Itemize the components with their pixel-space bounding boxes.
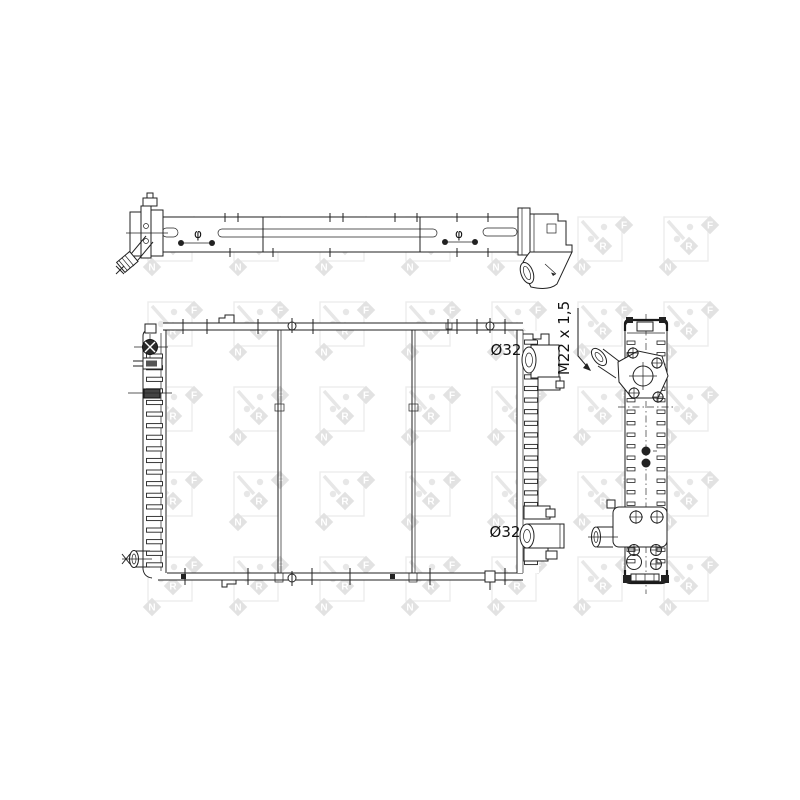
svg-text:R: R <box>427 582 435 593</box>
nrf-watermark-tile: NRF <box>659 556 719 616</box>
svg-text:R: R <box>341 582 349 593</box>
bolt-head <box>143 198 157 206</box>
pin-clamp <box>288 318 296 333</box>
nrf-watermark-tile: NRF <box>315 471 375 531</box>
svg-text:N: N <box>406 348 413 359</box>
svg-text:N: N <box>492 433 499 444</box>
svg-text:F: F <box>277 306 283 317</box>
phi-symbol: φ <box>194 227 202 241</box>
label-thread-spec: M22 x 1,5 <box>555 301 573 375</box>
top-view-bar <box>163 217 520 252</box>
svg-text:F: F <box>191 561 197 572</box>
svg-text:N: N <box>234 348 241 359</box>
nrf-watermark-tile: NRF <box>573 556 633 616</box>
pin-clamp <box>486 318 494 333</box>
svg-text:R: R <box>341 497 349 508</box>
nrf-watermark-tile: NRF <box>315 556 375 616</box>
svg-text:N: N <box>320 433 327 444</box>
top-left-bracket <box>116 193 168 274</box>
svg-text:F: F <box>191 476 197 487</box>
svg-text:R: R <box>599 582 607 593</box>
nrf-watermark-tile: NRF <box>229 386 289 446</box>
svg-text:R: R <box>513 582 521 593</box>
leader-arrowhead <box>583 363 591 371</box>
svg-text:N: N <box>320 263 327 274</box>
svg-text:F: F <box>707 306 713 317</box>
svg-text:R: R <box>427 497 435 508</box>
svg-text:F: F <box>621 221 627 232</box>
svg-text:R: R <box>255 412 263 423</box>
svg-text:N: N <box>578 603 585 614</box>
svg-text:R: R <box>169 582 177 593</box>
nrf-watermark-tile: NRF <box>573 386 633 446</box>
svg-text:R: R <box>685 582 693 593</box>
leader-line <box>578 308 590 370</box>
svg-text:N: N <box>492 263 499 274</box>
svg-text:R: R <box>599 497 607 508</box>
svg-text:F: F <box>363 306 369 317</box>
svg-text:N: N <box>578 518 585 529</box>
svg-text:R: R <box>169 497 177 508</box>
pin-clamp <box>485 571 495 590</box>
core-dividers <box>275 330 418 573</box>
svg-text:F: F <box>707 391 713 402</box>
nrf-watermark-tile: NRF <box>401 301 461 361</box>
svg-text:F: F <box>707 561 713 572</box>
nrf-watermark-tile: NRF <box>229 471 289 531</box>
nrf-watermark-tile: NRF <box>315 386 375 446</box>
svg-text:N: N <box>148 263 155 274</box>
svg-text:F: F <box>449 476 455 487</box>
top-right-bracket <box>518 208 572 288</box>
svg-text:R: R <box>341 412 349 423</box>
svg-text:F: F <box>707 476 713 487</box>
svg-text:N: N <box>234 433 241 444</box>
svg-text:N: N <box>406 518 413 529</box>
svg-text:R: R <box>255 582 263 593</box>
svg-text:N: N <box>320 603 327 614</box>
svg-text:F: F <box>363 391 369 402</box>
svg-text:F: F <box>363 561 369 572</box>
technical-drawing-canvas: NRFNRFNRFNRFNRFNRFNRFNRFNRFNRFNRFNRFNRFN… <box>0 0 800 800</box>
label-lower-port-diameter: Ø32 <box>490 523 521 541</box>
svg-text:N: N <box>234 263 241 274</box>
svg-text:N: N <box>578 348 585 359</box>
side-fitting <box>133 358 162 369</box>
svg-text:R: R <box>685 327 693 338</box>
svg-text:F: F <box>363 476 369 487</box>
svg-text:R: R <box>599 412 607 423</box>
svg-text:N: N <box>406 603 413 614</box>
svg-text:N: N <box>664 263 671 274</box>
nrf-watermark-tile: NRF <box>229 301 289 361</box>
dimension-labels: Ø32 Ø32 M22 x 1,5 <box>490 301 591 541</box>
phi-symbol: φ <box>455 227 463 241</box>
nrf-watermark-tile: NRF <box>659 386 719 446</box>
nrf-watermark-tile: NRF <box>315 301 375 361</box>
mount-tab <box>219 315 234 323</box>
nrf-watermark-tile: NRF <box>573 216 633 276</box>
nrf-watermark-tile: NRF <box>401 386 461 446</box>
svg-text:F: F <box>535 306 541 317</box>
svg-text:F: F <box>449 391 455 402</box>
svg-text:N: N <box>664 603 671 614</box>
svg-text:R: R <box>599 242 607 253</box>
nrf-watermark-tile: NRF <box>229 556 289 616</box>
svg-text:N: N <box>234 603 241 614</box>
svg-text:N: N <box>406 263 413 274</box>
svg-text:N: N <box>234 518 241 529</box>
svg-text:R: R <box>427 412 435 423</box>
svg-text:R: R <box>685 242 693 253</box>
svg-text:N: N <box>492 603 499 614</box>
svg-text:F: F <box>449 561 455 572</box>
svg-text:N: N <box>578 263 585 274</box>
nrf-watermark-tile: NRF <box>401 556 461 616</box>
svg-text:F: F <box>449 306 455 317</box>
label-upper-port-diameter: Ø32 <box>491 341 522 359</box>
svg-text:R: R <box>255 497 263 508</box>
svg-text:F: F <box>707 221 713 232</box>
svg-text:F: F <box>621 306 627 317</box>
svg-text:F: F <box>191 306 197 317</box>
svg-text:R: R <box>169 412 177 423</box>
svg-text:R: R <box>685 412 693 423</box>
nrf-watermark-tile: NRF <box>401 471 461 531</box>
hose-elbow <box>518 252 572 288</box>
radiator-drawing-svg: NRFNRFNRFNRFNRFNRFNRFNRFNRFNRFNRFNRFNRFN… <box>0 0 800 800</box>
svg-text:N: N <box>148 603 155 614</box>
lower-outlet-port <box>520 506 564 561</box>
filler-neck <box>145 324 156 333</box>
top-view: φ φ <box>116 193 572 288</box>
nrf-watermark-tile: NRF <box>659 216 719 276</box>
nrf-watermark-tile: NRF <box>659 471 719 531</box>
svg-text:R: R <box>599 327 607 338</box>
svg-text:N: N <box>320 348 327 359</box>
left-tank <box>122 324 172 578</box>
svg-text:N: N <box>320 518 327 529</box>
side-view <box>588 314 674 594</box>
svg-text:F: F <box>191 391 197 402</box>
svg-text:N: N <box>578 433 585 444</box>
svg-text:R: R <box>685 497 693 508</box>
svg-text:N: N <box>406 433 413 444</box>
